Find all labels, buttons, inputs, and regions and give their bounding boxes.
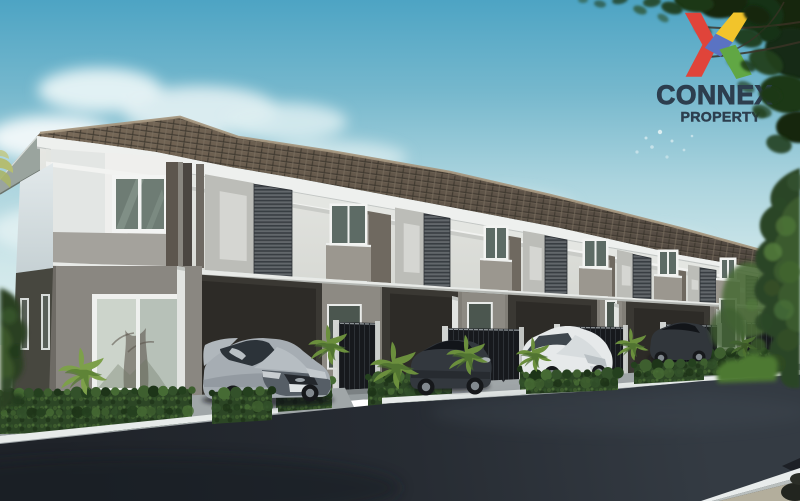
svg-text:PROPERTY: PROPERTY xyxy=(680,110,761,126)
svg-text:CONNEX: CONNEX xyxy=(656,80,772,110)
